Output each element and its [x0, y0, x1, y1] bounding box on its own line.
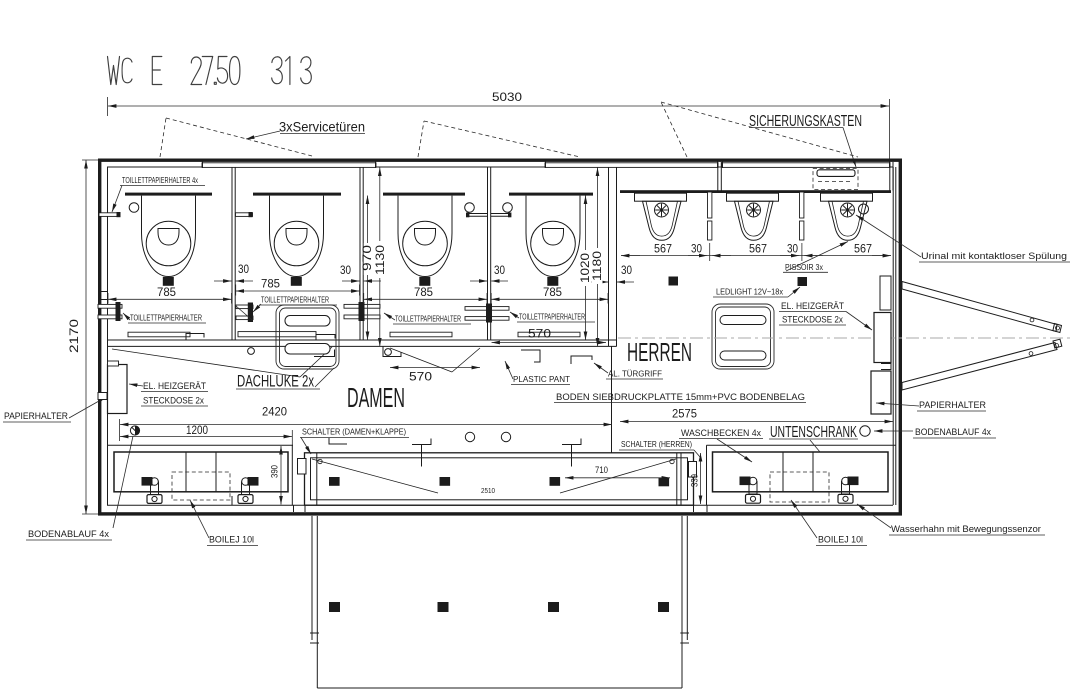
svg-text:BODENABLAUF 4x: BODENABLAUF 4x — [915, 427, 991, 438]
svg-text:WASCHBECKEN 4x: WASCHBECKEN 4x — [681, 428, 761, 439]
svg-text:567: 567 — [854, 242, 872, 256]
svg-text:785: 785 — [261, 277, 280, 291]
svg-text:785: 785 — [543, 285, 562, 299]
svg-text:1200: 1200 — [186, 423, 208, 437]
svg-text:567: 567 — [749, 242, 767, 256]
svg-text:TOILLETTPAPIERHALTER: TOILLETTPAPIERHALTER — [130, 314, 202, 323]
svg-text:30: 30 — [238, 262, 249, 276]
svg-text:Urinal mit kontaktloser Spülun: Urinal mit kontaktloser Spülung — [921, 251, 1067, 262]
svg-text:PAPIERHALTER: PAPIERHALTER — [4, 411, 68, 422]
svg-text:2170: 2170 — [67, 319, 81, 353]
svg-text:HERREN: HERREN — [627, 337, 692, 367]
svg-text:AL. TÜRGRIFF: AL. TÜRGRIFF — [608, 369, 662, 379]
svg-text:2420: 2420 — [262, 405, 287, 419]
svg-text:3xServicetüren: 3xServicetüren — [279, 119, 365, 135]
svg-text:DAMEN: DAMEN — [347, 382, 405, 413]
svg-text:PISSOIR 3x: PISSOIR 3x — [785, 263, 823, 272]
svg-text:30: 30 — [340, 263, 351, 277]
svg-text:LEDLIGHT 12V~18x: LEDLIGHT 12V~18x — [716, 288, 783, 297]
svg-text:5030: 5030 — [492, 90, 522, 104]
svg-text:339: 339 — [690, 474, 701, 487]
svg-text:UNTENSCHRANK: UNTENSCHRANK — [770, 424, 857, 441]
svg-text:2510: 2510 — [481, 486, 495, 495]
svg-text:BOILEJ 10l: BOILEJ 10l — [818, 535, 863, 546]
svg-text:1180: 1180 — [590, 251, 604, 281]
svg-text:710: 710 — [595, 465, 608, 475]
svg-text:PAPIERHALTER: PAPIERHALTER — [919, 400, 986, 411]
svg-text:EL. HEIZGERÄT: EL. HEIZGERÄT — [143, 381, 206, 392]
svg-text:TOILLETTPAPIERHALTER: TOILLETTPAPIERHALTER — [395, 315, 461, 324]
svg-text:BODENABLAUF 4x: BODENABLAUF 4x — [28, 529, 109, 540]
svg-text:DACHLUKE 2x: DACHLUKE 2x — [237, 373, 315, 391]
svg-text:PLASTIC PANT: PLASTIC PANT — [513, 375, 570, 384]
svg-text:567: 567 — [654, 242, 672, 256]
svg-text:785: 785 — [414, 285, 433, 299]
svg-text:2575: 2575 — [672, 407, 697, 421]
svg-text:STECKDOSE 2x: STECKDOSE 2x — [143, 396, 204, 407]
svg-text:785: 785 — [157, 285, 176, 299]
svg-text:390: 390 — [270, 465, 281, 478]
svg-text:570: 570 — [409, 370, 432, 384]
svg-text:30: 30 — [494, 263, 505, 277]
svg-text:STECKDOSE 2x: STECKDOSE 2x — [782, 315, 843, 326]
svg-text:TOILLETTPAPIERHALTER: TOILLETTPAPIERHALTER — [519, 313, 585, 322]
svg-text:30: 30 — [787, 242, 798, 256]
svg-text:1130: 1130 — [373, 245, 387, 275]
svg-text:BODEN SIEBDRUCKPLATTE 15mm+PVC: BODEN SIEBDRUCKPLATTE 15mm+PVC BODENBELA… — [556, 392, 805, 403]
svg-text:BOILEJ 10l: BOILEJ 10l — [209, 535, 254, 546]
svg-text:SCHALTER (HERREN): SCHALTER (HERREN) — [621, 440, 692, 449]
svg-text:EL. HEIZGERÄT: EL. HEIZGERÄT — [781, 301, 844, 312]
svg-text:570: 570 — [528, 327, 551, 341]
svg-text:Wasserhahn mit Bewegungssenzor: Wasserhahn mit Bewegungssenzor — [891, 524, 1042, 535]
svg-text:30: 30 — [691, 242, 702, 256]
svg-text:30: 30 — [621, 263, 632, 277]
svg-text:970: 970 — [360, 245, 374, 271]
svg-text:SCHALTER (DAMEN+KLAPPE): SCHALTER (DAMEN+KLAPPE) — [302, 428, 406, 437]
svg-text:TOILLETTPAPIERHALTER: TOILLETTPAPIERHALTER — [261, 296, 329, 305]
svg-text:TOILLETTPAPIERHALTER 4x: TOILLETTPAPIERHALTER 4x — [122, 176, 198, 185]
